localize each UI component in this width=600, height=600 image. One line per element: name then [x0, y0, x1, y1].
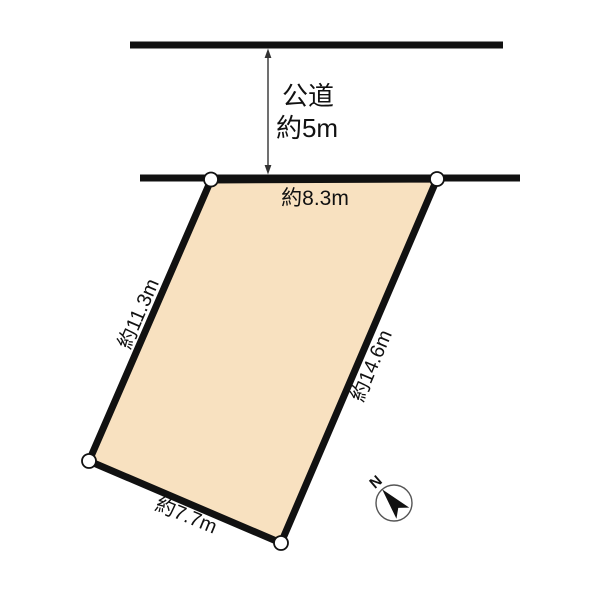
corner-marker-bottom-right: [274, 536, 288, 550]
road-width-arrow: [265, 49, 272, 175]
land-plot-diagram: 公道 約5m 約8.3m 約11.3m 約14.6m 約7.7m N: [0, 0, 600, 600]
plot-diagram-svg: 公道 約5m 約8.3m 約11.3m 約14.6m 約7.7m N: [0, 0, 600, 600]
corner-marker-top-left: [204, 173, 218, 187]
corner-marker-bottom-left: [82, 454, 96, 468]
arrowhead-up-icon: [265, 49, 272, 59]
road-width-label: 約5m: [276, 113, 338, 143]
dimension-label-top: 約8.3m: [281, 187, 349, 210]
corner-marker-top-right: [430, 172, 444, 186]
road-name-label: 公道: [282, 81, 334, 111]
compass: N: [364, 470, 412, 521]
arrowhead-down-icon: [265, 165, 272, 175]
